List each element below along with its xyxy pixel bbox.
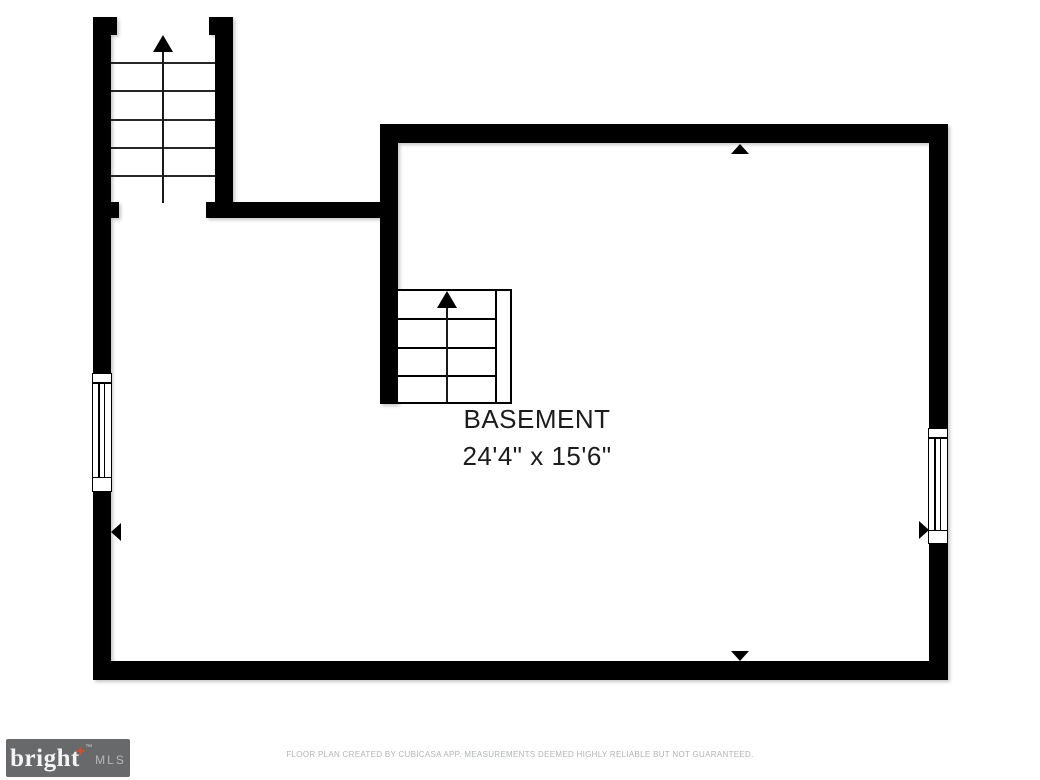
- room-dimensions: 24'4" x 15'6": [377, 441, 697, 472]
- measure-arrow-up-icon: [731, 144, 749, 154]
- window-glass-line: [98, 383, 100, 477]
- stairs-up-arrow-icon: [153, 35, 173, 52]
- floor-plan-features: [0, 0, 1040, 780]
- staircase-middle-icon: [396, 289, 512, 404]
- window-glass-line: [104, 383, 106, 477]
- measure-arrow-right-icon: [919, 521, 929, 539]
- room-label: BASEMENT: [377, 404, 697, 435]
- stair-divider: [495, 291, 497, 402]
- stair-direction-line: [446, 303, 448, 402]
- stairs-up-arrow-icon: [437, 291, 457, 308]
- disclaimer-text: FLOOR PLAN CREATED BY CUBICASA APP. MEAS…: [0, 750, 1040, 759]
- window-glass-line: [934, 438, 936, 530]
- window-icon-right: [928, 428, 948, 544]
- window-icon-left: [92, 373, 112, 492]
- stair-direction-line: [162, 49, 164, 203]
- window-glass-line: [940, 438, 942, 530]
- measure-arrow-left-icon: [111, 523, 121, 541]
- window-frame-line: [929, 437, 947, 439]
- window-frame-line: [93, 477, 111, 479]
- staircase-upper-icon: [111, 35, 215, 203]
- floor-plan-page: BASEMENT 24'4" x 15'6" bright + ™ MLS FL…: [0, 0, 1040, 780]
- window-frame-line: [929, 530, 947, 532]
- room-label-group: BASEMENT 24'4" x 15'6": [377, 404, 697, 472]
- measure-arrow-down-icon: [731, 651, 749, 661]
- window-frame-line: [93, 382, 111, 384]
